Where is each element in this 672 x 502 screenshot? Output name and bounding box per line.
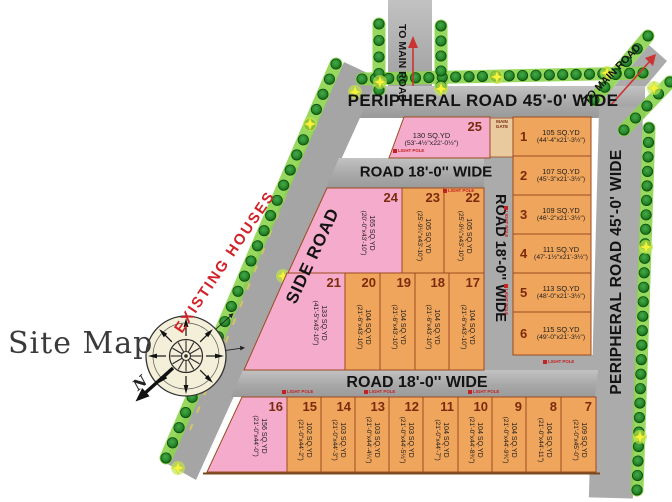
tree-icon <box>311 104 321 114</box>
tree-icon <box>436 36 446 46</box>
tree-icon <box>640 224 650 234</box>
tree-icon <box>635 383 645 393</box>
peripheral-road-right-label: PERIPHERAL ROAD 45'-0' WIDE <box>608 149 626 394</box>
plot-number-11: 11 <box>440 400 454 413</box>
plot-area: 111 SQ.YD <box>534 244 588 254</box>
plot-label-16: 156 SQ.YD(21'-0"x44'-0") <box>250 415 268 456</box>
plot-number-10: 10 <box>474 400 488 413</box>
plot-dims: (21'-0"x44'-4¼") <box>363 416 372 463</box>
plot-label-9: 104 SQ.YD(21'-0"x44'-9¾") <box>500 416 518 463</box>
plot-dims: (45'-3"x21'-3½") <box>537 176 585 185</box>
plot-area: 105 SQ.YD <box>537 127 585 137</box>
tree-icon <box>374 52 384 62</box>
plot-dims: (25'-9¼"x43'-10") <box>455 210 464 260</box>
page-title: Site Map <box>8 326 153 361</box>
tree-icon <box>233 286 243 296</box>
tree-icon <box>643 137 653 147</box>
tree-icon <box>161 453 171 463</box>
plot-label-22: 105 SQ.YD(25'-9¼"x43'-10") <box>455 210 473 260</box>
light-pole-text: LIGHT POLE <box>398 148 424 153</box>
plot-number-13: 13 <box>371 400 385 413</box>
light-pole-label: LIGHT POLE <box>503 284 508 315</box>
tree-icon <box>298 135 308 145</box>
plot-dims: (41'-5"x43'-10") <box>310 301 319 346</box>
plot-number-23: 23 <box>426 191 440 204</box>
tree-icon <box>324 74 334 84</box>
plot-dims: (21'-0"x44'-9¾") <box>500 416 509 463</box>
light-pole-text: LIGHT POLE <box>473 389 499 394</box>
plot-number-20: 20 <box>362 276 376 289</box>
tree-icon <box>624 68 634 78</box>
main-gate-label: MAIN GATE <box>491 119 513 130</box>
plot-number-4: 4 <box>520 247 527 260</box>
plot-label-8: 104 SQ.YD(21'-0"x44'-11") <box>534 417 552 461</box>
tree-icon <box>619 125 629 135</box>
tree-icon <box>436 21 446 31</box>
plot-number-12: 12 <box>405 400 419 413</box>
tree-icon <box>259 225 269 235</box>
light-pole-icon <box>393 149 397 153</box>
plot-label-25: 130 SQ.YD(53'-4½"x22'-0½") <box>405 130 459 148</box>
plot-area: 104 SQ.YD <box>440 419 449 460</box>
plot-number-7: 7 <box>585 400 592 413</box>
plot-number-15: 15 <box>303 400 317 413</box>
plot-label-19: 104 SQ.YD(21'-6"x43'-10") <box>388 304 406 349</box>
plot-label-14: 103 SQ.YD(21'-0"x44'-3") <box>329 419 347 460</box>
tree-icon <box>239 271 249 281</box>
light-pole-icon <box>468 390 472 394</box>
plot-number-6: 6 <box>520 327 527 340</box>
plot-dims: (21'-0"x44'-5½") <box>397 416 406 463</box>
tree-icon <box>642 101 652 111</box>
tree-icon <box>544 70 554 80</box>
plot-area: 104 SQ.YD <box>509 416 518 463</box>
plot-dims: (44'-4"x21'-3½") <box>537 137 585 146</box>
tree-icon <box>450 72 460 82</box>
tree-icon <box>641 195 651 205</box>
plot-dims: (21'-0"x44'-3") <box>329 419 338 460</box>
plot-number-2: 2 <box>520 169 527 182</box>
plot-area: 130 SQ.YD <box>405 130 459 140</box>
plot-number-17: 17 <box>466 276 480 289</box>
tree-icon <box>634 412 644 422</box>
tree-icon <box>424 72 434 82</box>
plot-dims: (46'-2"x21'-3½") <box>537 215 585 224</box>
plot-label-13: 103 SQ.YD(21'-0"x44'-4¼") <box>363 416 381 463</box>
site-map-page: Site Map EXISTING HOUSES PERIPHERAL ROAD… <box>0 0 672 502</box>
plot-label-21: 133 SQ.YD(41'-5"x43'-10") <box>310 301 328 346</box>
light-pole-text: LIGHT POLE <box>448 188 474 193</box>
plot-dims: (47'-1½"x21'-3½") <box>534 254 588 263</box>
plot-area: 165 SQ.YD <box>367 211 376 256</box>
plot-dims: (21'-6"x43'-10") <box>423 304 432 349</box>
tree-icon <box>477 71 487 81</box>
plot-label-23: 105 SQ.YD(25'-9¼"x43'-10") <box>414 210 432 260</box>
plot-area: 115 SQ.YD <box>537 324 585 334</box>
tree-icon <box>278 180 288 190</box>
tree-icon <box>639 268 649 278</box>
plot-dims: (20'-0"x43'-10") <box>358 211 367 256</box>
tree-icon <box>639 253 649 263</box>
light-pole-text: LIGHT POLE <box>369 389 395 394</box>
tree-icon <box>180 407 190 417</box>
plot-area: 104 SQ.YD <box>362 304 371 349</box>
tree-icon <box>464 72 474 82</box>
tree-icon <box>331 59 341 69</box>
plot-dims: (21'-6"x43'-10") <box>353 304 362 349</box>
tree-icon <box>374 35 384 45</box>
plot-dims: (25'-9¼"x43'-10") <box>414 210 423 260</box>
tree-icon <box>630 113 640 123</box>
tree-icon <box>639 282 649 292</box>
plot-label-10: 104 SQ.YD(21'-0"x44'-8¾") <box>466 416 484 463</box>
plot-area: 104 SQ.YD <box>397 304 406 349</box>
tree-icon <box>642 166 652 176</box>
plot-number-5: 5 <box>520 286 527 299</box>
tree-icon <box>436 51 446 61</box>
tree-icon <box>318 89 328 99</box>
plot-label-2: 107 SQ.YD(45'-3"x21'-3½") <box>537 166 585 184</box>
plot-dims: (49'-0"x21'-3½") <box>537 334 585 343</box>
plot-label-24: 165 SQ.YD(20'-0"x43'-10") <box>358 211 376 256</box>
light-pole-label: LIGHT POLE <box>543 360 574 365</box>
plot-area: 113 SQ.YD <box>537 283 585 293</box>
plot-number-21: 21 <box>327 276 341 289</box>
tree-icon <box>517 70 527 80</box>
tree-icon <box>636 369 646 379</box>
light-pole-icon <box>504 206 508 210</box>
plot-number-19: 19 <box>397 276 411 289</box>
plot-area: 156 SQ.YD <box>259 415 268 456</box>
light-pole-text: LIGHT POLE <box>504 211 509 237</box>
tree-icon <box>644 123 654 133</box>
plot-number-8: 8 <box>550 400 557 413</box>
light-pole-icon <box>443 189 447 193</box>
plot-area: 103 SQ.YD <box>372 416 381 463</box>
plot-label-20: 104 SQ.YD(21'-6"x43'-10") <box>353 304 371 349</box>
peripheral-road-top-label: PERIPHERAL ROAD 45'-0' WIDE <box>348 91 619 111</box>
plot-number-18: 18 <box>431 276 445 289</box>
plot-label-6: 115 SQ.YD(49'-0"x21'-3½") <box>537 324 585 342</box>
plot-dims: (21'-0"x44'-8¾") <box>466 416 475 463</box>
tree-icon <box>638 311 648 321</box>
plot-dims: (21'-6"x43'-10") <box>388 304 397 349</box>
plot-number-16: 16 <box>269 400 283 413</box>
tree-icon <box>252 241 262 251</box>
plot-dims: (48'-0"x21'-3½") <box>537 293 585 302</box>
tree-icon <box>632 470 642 480</box>
plot-area: 109 SQ.YD <box>537 205 585 215</box>
plot-number-14: 14 <box>337 400 351 413</box>
to-main-road-left-label: TO MAIN ROAD <box>396 24 408 102</box>
plot-label-18: 104 SQ.YD(21'-6"x43'-10") <box>423 304 441 349</box>
light-pole-icon <box>282 390 286 394</box>
plot-area: 104 SQ.YD <box>475 416 484 463</box>
plot-number-3: 3 <box>520 208 527 221</box>
tree-icon <box>637 326 647 336</box>
tree-icon <box>632 485 642 495</box>
tree-icon <box>167 438 177 448</box>
tree-icon <box>665 77 672 87</box>
plot-dims: (21'-0"x45'-0") <box>569 419 578 460</box>
light-pole-text: LIGHT POLE <box>287 389 313 394</box>
tree-icon <box>635 398 645 408</box>
tree-icon <box>285 165 295 175</box>
tree-icon <box>246 256 256 266</box>
plot-dims: (21'-0"x44'-11") <box>534 417 543 461</box>
plot-label-7: 109 SQ.YD(21'-0"x45'-0") <box>569 419 587 460</box>
plot-label-11: 104 SQ.YD(21'-0"x44'-7") <box>431 419 449 460</box>
tree-icon <box>558 70 568 80</box>
tree-icon <box>357 74 367 84</box>
plot-area: 105 SQ.YD <box>423 210 432 260</box>
tree-icon <box>636 354 646 364</box>
plot-number-24: 24 <box>384 191 398 204</box>
plot-area: 103 SQ.YD <box>406 416 415 463</box>
plot-number-25: 25 <box>468 120 482 133</box>
tree-icon <box>292 150 302 160</box>
plot-area: 104 SQ.YD <box>466 304 475 349</box>
tree-icon <box>504 71 514 81</box>
light-pole-label: LIGHT POLE <box>443 189 474 194</box>
plot-area: 109 SQ.YD <box>578 419 587 460</box>
plot-area: 102 SQ.YD <box>304 419 313 460</box>
plot-area: 133 SQ.YD <box>319 301 328 346</box>
tree-icon <box>643 152 653 162</box>
tree-icon <box>374 19 384 29</box>
plot-dims: (21'-0"x44'-7") <box>431 419 440 460</box>
tree-icon <box>226 301 236 311</box>
plot-area: 104 SQ.YD <box>432 304 441 349</box>
light-pole-icon <box>504 284 508 288</box>
plot-number-9: 9 <box>515 400 522 413</box>
light-pole-label: LIGHT POLE <box>393 149 424 154</box>
light-pole-text: LIGHT POLE <box>504 289 509 315</box>
plot-area: 105 SQ.YD <box>464 210 473 260</box>
tree-icon <box>637 340 647 350</box>
plot-number-1: 1 <box>520 130 527 143</box>
plot-area: 103 SQ.YD <box>338 419 347 460</box>
plot-label-17: 104 SQ.YD(21'-6"x43'-10") <box>457 304 475 349</box>
light-pole-label: LIGHT POLE <box>503 206 508 237</box>
plot-area: 107 SQ.YD <box>537 166 585 176</box>
light-pole-label: LIGHT POLE <box>282 390 313 395</box>
tree-icon <box>643 31 653 41</box>
light-pole-icon <box>364 390 368 394</box>
tree-icon <box>436 66 446 76</box>
plot-label-1: 105 SQ.YD(44'-4"x21'-3½") <box>537 127 585 145</box>
tree-icon <box>641 210 651 220</box>
light-pole-text: LIGHT POLE <box>548 359 574 364</box>
plot-label-4: 111 SQ.YD(47'-1½"x21'-3½") <box>534 244 588 262</box>
tree-icon <box>571 69 581 79</box>
tree-icon <box>584 69 594 79</box>
plot-area: 104 SQ.YD <box>543 417 552 461</box>
inner-road-top-label: ROAD 18'-0'' WIDE <box>360 164 492 181</box>
plot-label-5: 113 SQ.YD(48'-0"x21'-3½") <box>537 283 585 301</box>
plot-dims: (21'-6"x43'-10") <box>457 304 466 349</box>
tree-icon <box>633 456 643 466</box>
plot-dims: (21'-0"x44'-2") <box>295 419 304 460</box>
plot-label-12: 103 SQ.YD(21'-0"x44'-5½") <box>397 416 415 463</box>
light-pole-icon <box>543 360 547 364</box>
tree-icon <box>531 70 541 80</box>
tree-icon <box>174 422 184 432</box>
plot-label-15: 102 SQ.YD(21'-0"x44'-2") <box>295 419 313 460</box>
plot-label-3: 109 SQ.YD(46'-2"x21'-3½") <box>537 205 585 223</box>
tree-icon <box>642 181 652 191</box>
light-pole-label: LIGHT POLE <box>364 390 395 395</box>
tree-icon <box>410 73 420 83</box>
tree-icon <box>638 297 648 307</box>
plot-dims: (21'-0"x44'-0") <box>250 415 259 456</box>
light-pole-label: LIGHT POLE <box>468 390 499 395</box>
